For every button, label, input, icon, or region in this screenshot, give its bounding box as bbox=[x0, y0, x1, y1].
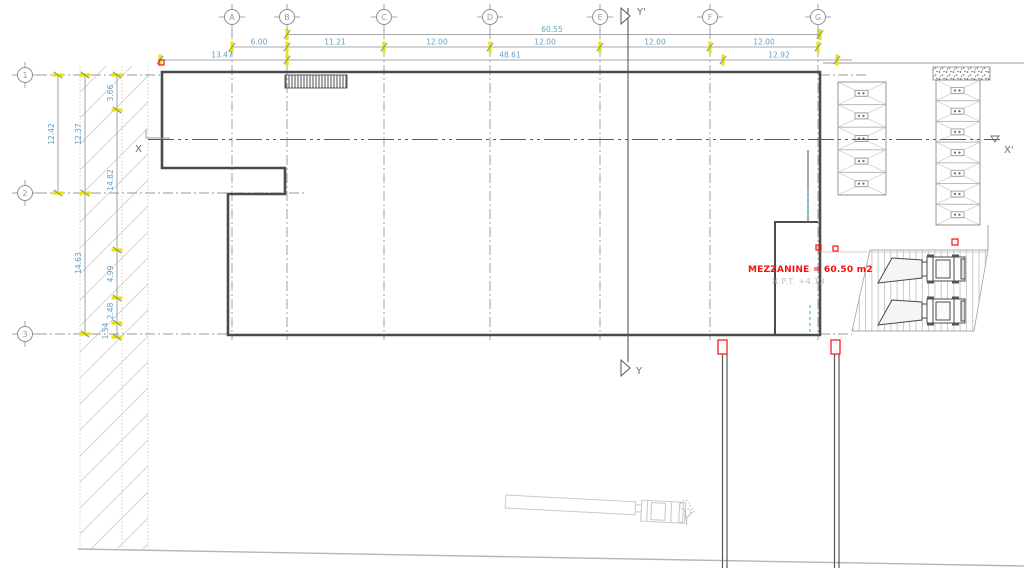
grid-bubble-label: 1 bbox=[22, 71, 27, 80]
grid-bubble-label: E bbox=[597, 13, 602, 22]
dim-label-left: 3.66 bbox=[106, 84, 115, 101]
interior-walls bbox=[775, 150, 818, 335]
dim-label-overall: 48.61 bbox=[499, 51, 521, 60]
dim-label-bay: 12.00 bbox=[426, 38, 448, 47]
yard-walls bbox=[718, 340, 840, 568]
dim-label-left: 12.42 bbox=[47, 123, 56, 145]
stair-hatch bbox=[285, 75, 347, 88]
y-axis-line: Y' Y bbox=[621, 7, 646, 377]
dim-label-bay: 12.00 bbox=[753, 38, 775, 47]
parking-area bbox=[823, 63, 1024, 250]
grid-bubble-label: A bbox=[229, 13, 235, 22]
mezzanine-marker bbox=[833, 246, 838, 251]
building-outline bbox=[162, 72, 820, 335]
dock-corner-marker bbox=[952, 239, 958, 245]
grid-bubble-label: G bbox=[815, 13, 821, 22]
mezzanine-label: MEZZANINE = 60.50 m2 bbox=[748, 265, 873, 275]
loading-dock bbox=[822, 239, 988, 331]
dim-label-bay: 6.00 bbox=[251, 38, 268, 47]
dim-label-left: 4.99 bbox=[106, 265, 115, 282]
dim-label-bay: 12.00 bbox=[534, 38, 556, 47]
column-marker bbox=[831, 340, 840, 354]
tree-symbol bbox=[680, 500, 694, 525]
grid-bubble-label: B bbox=[284, 13, 290, 22]
grid-bubbles-rows: 1 2 3 bbox=[12, 62, 38, 347]
dim-label-left: 1.54 bbox=[101, 322, 110, 339]
site-boundary-line bbox=[78, 549, 1024, 566]
grid-bubble-label: F bbox=[708, 13, 713, 22]
grid-bubble-label: 3 bbox=[22, 330, 27, 339]
x-prime-axis-label: X' bbox=[1004, 145, 1014, 156]
dim-label-overall: 12.92 bbox=[768, 51, 790, 60]
dim-label-overall: 13.47 bbox=[211, 51, 233, 60]
parking-stalls-left-column bbox=[838, 82, 886, 195]
column-marker bbox=[718, 340, 727, 354]
grid-bubble-label: 2 bbox=[22, 189, 27, 198]
gravel-strip bbox=[933, 67, 990, 80]
mezzanine-annotation: MEZZANINE = 60.50 m2 N.P.T. +4.13 bbox=[159, 60, 873, 286]
y-prime-axis-label: Y' bbox=[636, 7, 646, 18]
ghost-truck bbox=[505, 493, 686, 523]
dimension-lines-top: 60.55 6.00 11.21 12.00 12.00 12.00 12.00… bbox=[157, 25, 852, 66]
dim-label-left: 2.48 bbox=[106, 302, 115, 319]
dim-label-left: 12.37 bbox=[74, 123, 83, 145]
dim-label-left: 14.63 bbox=[74, 252, 83, 274]
x-axis-label: X bbox=[135, 144, 142, 155]
dim-label-bay: 11.21 bbox=[324, 38, 346, 47]
dim-label-left: 14.82 bbox=[106, 169, 115, 191]
parking-stalls-right-column bbox=[936, 80, 980, 225]
grid-bubble-label: C bbox=[381, 13, 387, 22]
grid-bubbles-columns: A B C D E F G bbox=[219, 4, 831, 30]
npt-level-label: N.P.T. +4.13 bbox=[772, 277, 825, 286]
dim-label-bay: 12.00 bbox=[644, 38, 666, 47]
y-axis-label: Y bbox=[635, 366, 643, 377]
floor-plan-canvas: 60.55 6.00 11.21 12.00 12.00 12.00 12.00… bbox=[0, 0, 1024, 568]
grid-bubble-label: D bbox=[487, 13, 493, 22]
dim-label-total: 60.55 bbox=[541, 25, 563, 34]
